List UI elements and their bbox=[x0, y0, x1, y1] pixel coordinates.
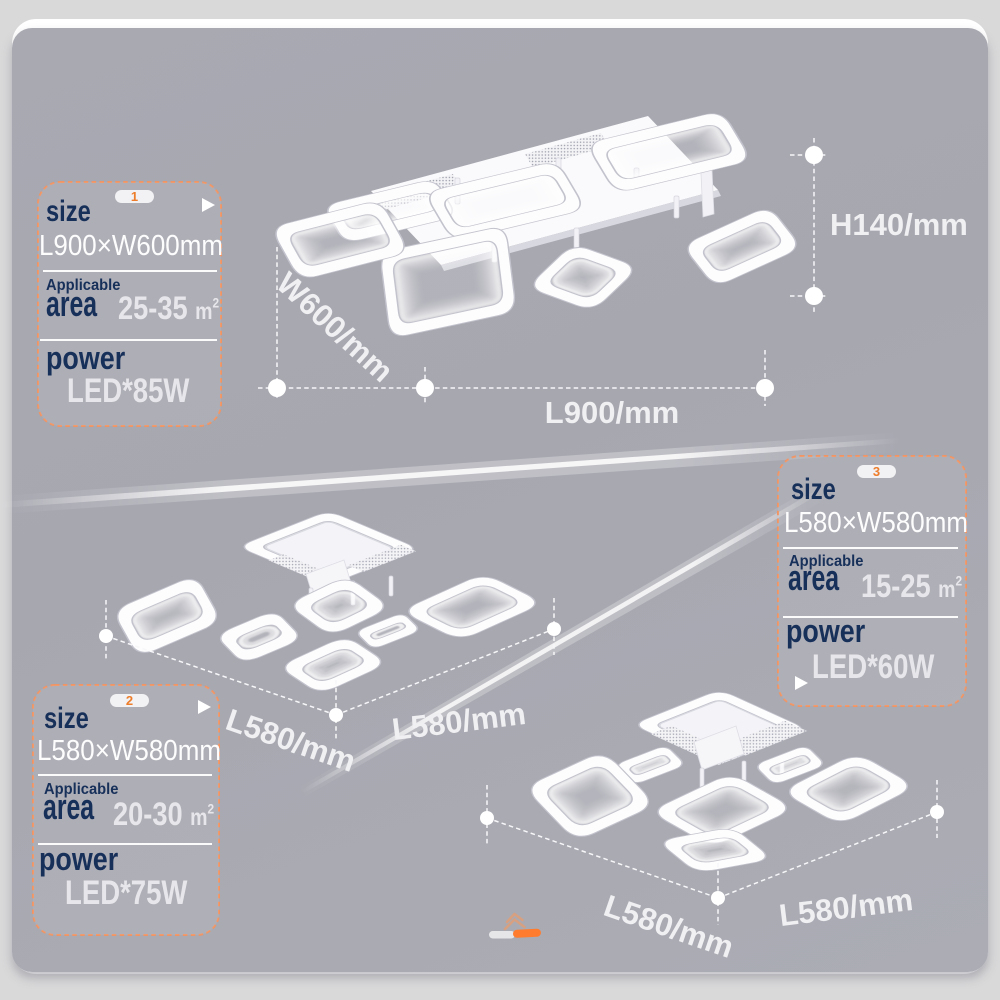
svg-text:H140/mm: H140/mm bbox=[830, 207, 968, 242]
svg-text:L580/mm: L580/mm bbox=[777, 882, 915, 933]
svg-text:L900/mm: L900/mm bbox=[545, 395, 679, 430]
svg-text:L580/mm: L580/mm bbox=[390, 696, 528, 747]
svg-text:W600/mm: W600/mm bbox=[270, 265, 400, 389]
